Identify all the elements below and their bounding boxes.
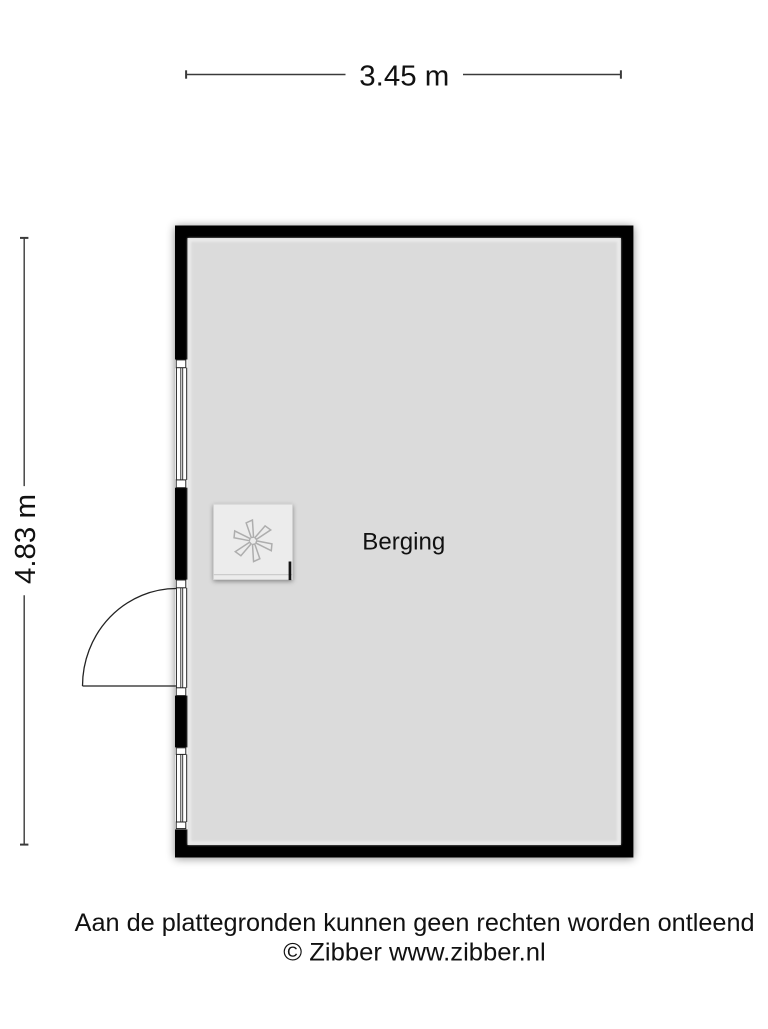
svg-text:Berging: Berging — [362, 528, 445, 555]
svg-text:© Zibber www.zibber.nl: © Zibber www.zibber.nl — [283, 939, 546, 967]
svg-text:3.45 m: 3.45 m — [359, 61, 449, 93]
svg-text:Aan de plattegronden kunnen ge: Aan de plattegronden kunnen geen rechten… — [75, 909, 755, 937]
svg-text:4.83 m: 4.83 m — [10, 494, 42, 584]
